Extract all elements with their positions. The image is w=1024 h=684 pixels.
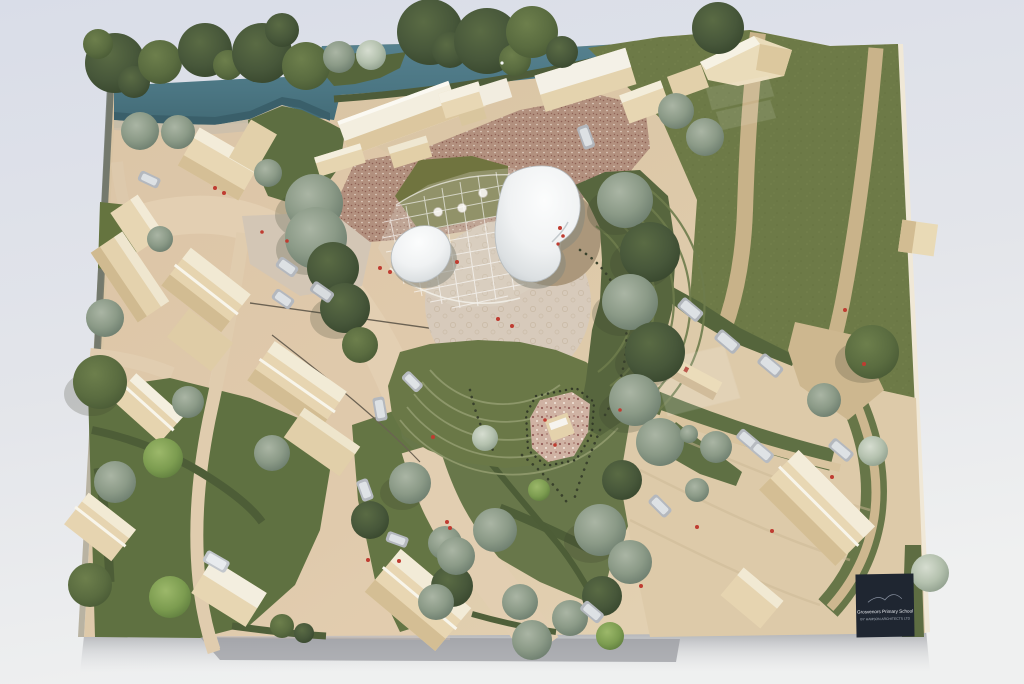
svg-text:Grosvenors Primary School: Grosvenors Primary School [857,609,913,615]
